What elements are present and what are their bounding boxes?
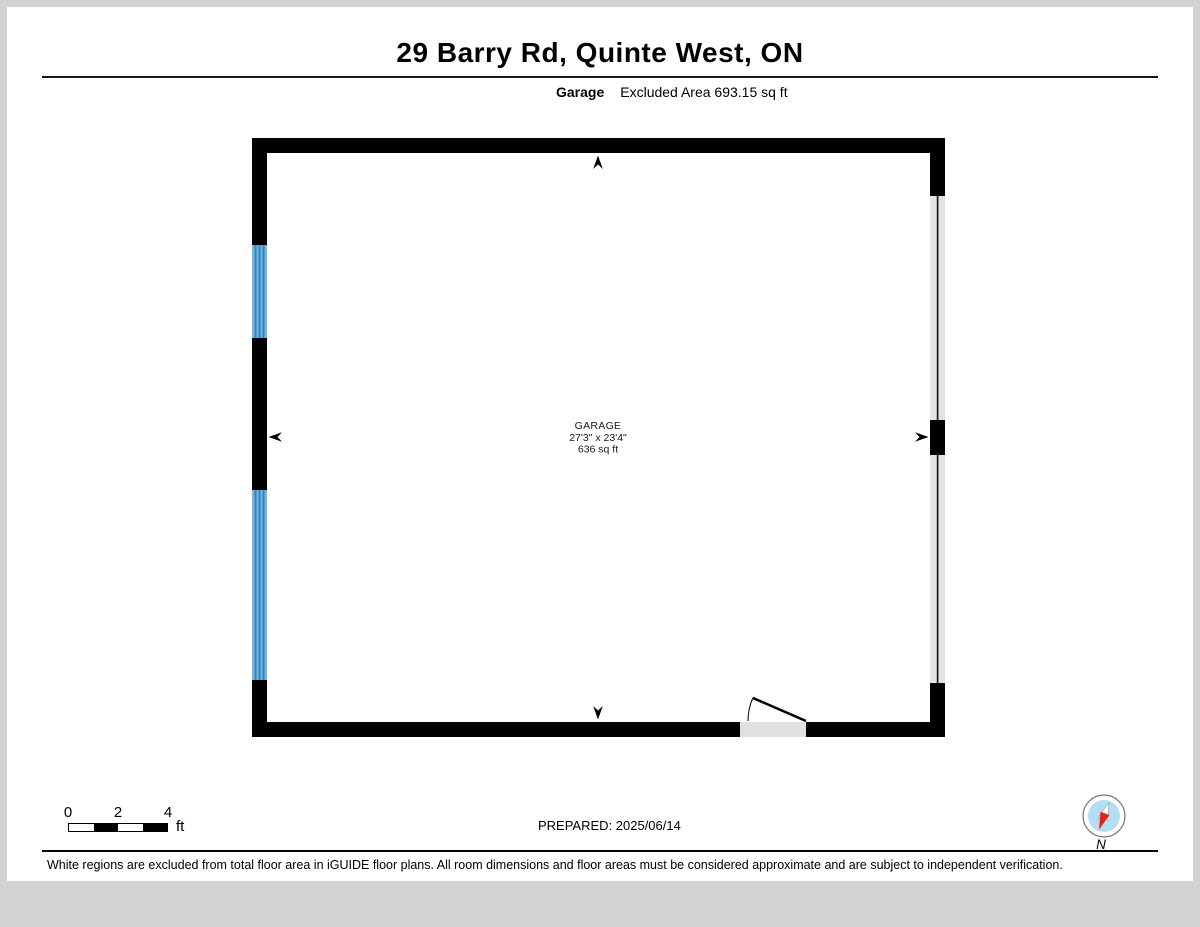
dimension-arrow-up xyxy=(593,156,603,170)
door-opening xyxy=(740,722,806,737)
floor-plan-page: 29 Barry Rd, Quinte West, ON GarageExclu… xyxy=(0,0,1200,927)
room-area-label: 636 sq ft xyxy=(578,444,618,456)
scale-segment xyxy=(118,824,143,831)
scale-bar xyxy=(68,823,168,832)
scale-unit-label: ft xyxy=(176,818,184,835)
scale-tick-4: 4 xyxy=(164,804,172,821)
dimension-arrow-left xyxy=(269,432,283,442)
compass-icon: N xyxy=(1083,795,1125,852)
floorplan-drawing: GARAGE 27'3" x 23'4" 636 sq ft N xyxy=(0,0,1200,927)
room-name-label: GARAGE xyxy=(575,420,622,432)
wall-top xyxy=(252,138,945,153)
scale-segment xyxy=(94,824,119,831)
dimension-arrow-right xyxy=(915,432,929,442)
room-dimensions-label: 27'3" x 23'4" xyxy=(569,432,627,444)
disclaimer-text: White regions are excluded from total fl… xyxy=(47,858,1157,872)
dimension-arrow-down xyxy=(593,706,603,720)
scale-tick-2: 2 xyxy=(114,804,122,821)
prepared-date: PREPARED: 2025/06/14 xyxy=(538,818,681,833)
scale-tick-0: 0 xyxy=(64,804,72,821)
footer-divider xyxy=(42,850,1158,852)
scale-segment xyxy=(69,824,94,831)
scale-segment xyxy=(143,824,168,831)
garage-door-lower xyxy=(930,455,945,683)
wall-bottom xyxy=(252,722,945,737)
garage-door-upper xyxy=(930,196,945,420)
window-lower xyxy=(252,490,267,680)
door-swing xyxy=(748,698,806,721)
window-upper xyxy=(252,245,267,338)
